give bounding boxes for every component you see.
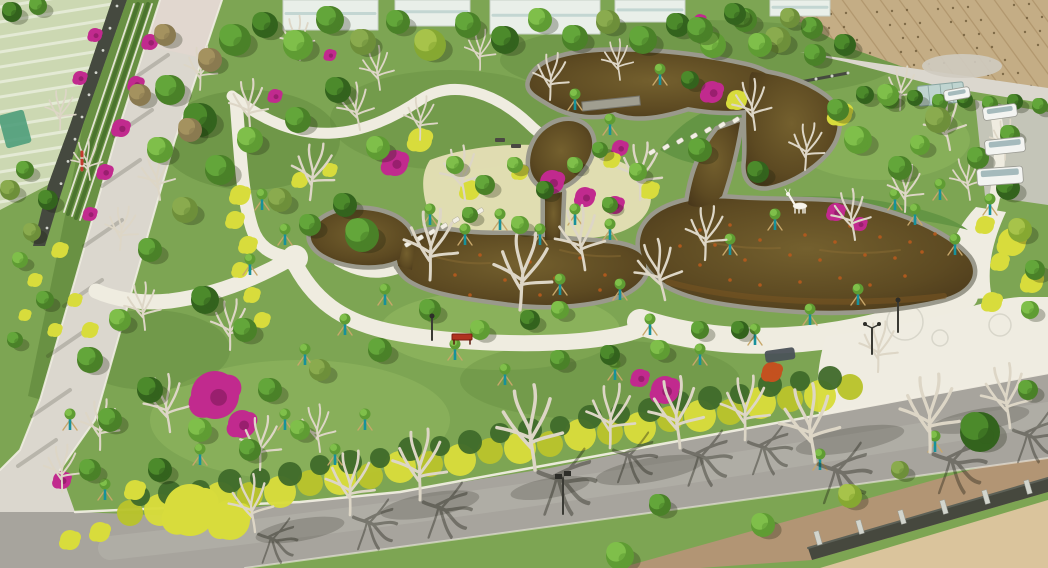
orange-flower-bush: [761, 370, 773, 382]
bougainvillea-magenta: [638, 376, 644, 382]
wall-post: [95, 71, 98, 74]
canopy-texture: [297, 117, 307, 127]
canopy-texture: [149, 248, 159, 258]
canopy-texture: [119, 318, 128, 327]
bare-orchard-tree: [1002, 73, 1004, 75]
canopy-texture: [189, 128, 199, 138]
koi-fish: [468, 293, 472, 297]
bare-orchard-tree: [937, 8, 939, 10]
bougainvillea-magenta: [210, 389, 227, 406]
canopy-texture: [249, 448, 258, 457]
canopy-texture: [699, 328, 706, 335]
bare-orchard-tree: [980, 19, 982, 21]
park-bench: [511, 144, 521, 148]
red-bench-seat: [452, 334, 472, 340]
canopy-texture: [919, 143, 927, 151]
canopy-texture: [469, 213, 475, 219]
koi-fish: [598, 288, 602, 292]
canopy-texture: [864, 93, 871, 100]
yellow-flower-bush: [47, 328, 55, 336]
koi-fish: [798, 280, 802, 284]
yellow-flower-bush: [135, 482, 146, 493]
canopy-texture: [24, 168, 31, 175]
canopy-texture: [219, 167, 231, 179]
canopy-texture: [978, 428, 994, 444]
wall-post: [116, 5, 119, 8]
bare-orchard-tree: [993, 32, 995, 34]
canopy-texture: [199, 428, 209, 438]
yellow-flower-bush: [67, 298, 75, 306]
canopy-texture: [544, 188, 551, 195]
bare-orchard-tree: [1017, 72, 1019, 74]
canopy-texture: [659, 348, 667, 356]
koi-fish: [833, 240, 837, 244]
canopy-texture: [899, 468, 906, 475]
koi-fish: [878, 235, 882, 239]
koi-fish: [503, 278, 507, 282]
park-bench: [495, 138, 505, 142]
canopy-texture: [574, 35, 584, 45]
bare-orchard-tree: [876, 11, 878, 13]
canopy-texture: [264, 22, 274, 32]
canopy-texture: [849, 494, 859, 504]
solar-panel: [564, 471, 571, 476]
koi-fish: [698, 263, 702, 267]
bare-orchard-tree: [1004, 59, 1006, 61]
koi-fish: [758, 238, 762, 242]
canopy-texture: [109, 418, 119, 428]
canopy-texture: [377, 146, 387, 156]
bare-orchard-tree: [856, 39, 858, 41]
koi-fish: [743, 258, 747, 262]
canopy-texture: [777, 37, 787, 47]
yellow-flower-bush: [650, 182, 660, 192]
dark-bush: [398, 437, 422, 461]
canopy-texture: [504, 37, 515, 48]
canopy-texture: [362, 39, 372, 49]
dark-bush: [310, 455, 330, 475]
bougainvillea-magenta: [79, 76, 84, 81]
canopy-texture: [637, 170, 644, 177]
bougainvillea-magenta: [94, 33, 99, 38]
bare-orchard-tree: [902, 37, 904, 39]
koi-fish: [678, 244, 682, 248]
canopy-texture: [379, 348, 389, 358]
canopy-texture: [269, 388, 279, 398]
yellow-flower-bush: [1000, 254, 1010, 264]
yellow-flower-bush: [235, 212, 245, 222]
bare-orchard-tree: [915, 50, 917, 52]
dark-bush: [458, 430, 482, 454]
yellow-flower-bush: [208, 515, 232, 539]
yellow-flower-bush: [75, 294, 83, 302]
yellow-flower-bush: [640, 188, 651, 199]
yellow-flower-bush: [89, 530, 101, 542]
canopy-texture: [479, 328, 487, 336]
canopy-texture: [139, 93, 148, 102]
bare-orchard-tree: [950, 21, 952, 23]
koi-fish: [893, 256, 897, 260]
bare-orchard-tree: [930, 49, 932, 51]
canopy-texture: [937, 117, 947, 127]
bare-orchard-tree: [978, 33, 980, 35]
canopy-texture: [757, 170, 766, 179]
bare-orchard-tree: [906, 9, 908, 11]
canopy-texture: [762, 523, 772, 533]
canopy-texture: [609, 353, 617, 361]
canopy-texture: [309, 223, 318, 232]
canopy-texture: [837, 108, 846, 117]
yellow-flower-bush: [997, 239, 1014, 256]
yellow-flower-bush: [60, 243, 69, 252]
dark-bush: [218, 469, 242, 493]
dark-bush: [278, 462, 302, 486]
canopy-texture: [619, 553, 630, 564]
yellow-flower-bush: [262, 313, 271, 322]
canopy-texture: [712, 42, 722, 52]
canopy-texture: [159, 468, 169, 478]
yellow-flower-bush: [55, 324, 63, 332]
dark-bush: [818, 366, 842, 390]
bougainvillea-magenta: [392, 160, 401, 169]
yellow-flower-bush: [407, 137, 421, 151]
bare-orchard-tree: [1026, 17, 1028, 19]
koi-fish: [728, 223, 732, 227]
koi-fish: [803, 233, 807, 237]
parked-car: [976, 166, 1023, 186]
yellow-flower-bush: [992, 294, 1003, 305]
canopy-texture: [559, 308, 566, 315]
canopy-texture: [19, 258, 25, 264]
bare-orchard-tree: [1041, 16, 1043, 18]
bougainvillea-magenta: [329, 54, 333, 58]
yellow-flower-bush: [70, 532, 81, 543]
yellow-flower-bush: [231, 268, 241, 278]
canopy-texture: [609, 203, 615, 209]
koi-fish: [908, 240, 912, 244]
yellow-flower-bush: [27, 278, 35, 286]
canopy-texture: [184, 207, 194, 217]
yellow-flower-bush: [225, 218, 236, 229]
koi-fish: [838, 276, 842, 280]
canopy-texture: [739, 328, 746, 335]
bare-orchard-tree: [889, 24, 891, 26]
yellow-flower-bush: [90, 323, 99, 332]
canopy-texture: [514, 163, 520, 169]
yellow-flower-bush: [25, 310, 32, 317]
koi-fish: [453, 273, 457, 277]
yellow-flower-bush: [161, 503, 192, 534]
canopy-texture: [31, 230, 38, 237]
koi-fish: [578, 256, 582, 260]
canopy-texture: [344, 203, 354, 213]
canopy-texture: [689, 78, 696, 85]
canopy-texture: [964, 98, 970, 104]
canopy-texture: [539, 18, 549, 28]
koi-fish: [818, 258, 822, 262]
yellow-flower-bush: [18, 314, 25, 321]
canopy-texture: [574, 163, 580, 169]
wall-post: [60, 182, 63, 185]
canopy-texture: [1039, 104, 1045, 110]
orange-flower-bush: [772, 364, 783, 375]
bare-orchard-tree: [1037, 44, 1039, 46]
canopy-texture: [887, 93, 896, 102]
boulder-rock: [922, 54, 1002, 78]
canopy-texture: [337, 87, 347, 97]
bare-orchard-tree: [843, 26, 845, 28]
yellow-flower-bush: [420, 130, 433, 143]
wall-post: [81, 116, 84, 119]
canopy-texture: [977, 156, 986, 165]
canopy-texture: [44, 298, 51, 305]
wall-post: [67, 160, 70, 163]
canopy-texture: [559, 358, 567, 366]
canopy-texture: [659, 503, 668, 512]
canopy-texture: [734, 12, 743, 21]
bougainvillea-magenta: [618, 146, 624, 152]
canopy-texture: [1007, 186, 1017, 196]
bare-orchard-tree: [952, 7, 954, 9]
solar-panel: [555, 474, 562, 479]
yellow-flower-bush: [252, 288, 261, 297]
wall-post: [831, 75, 834, 78]
canopy-texture: [397, 20, 407, 30]
canopy-texture: [699, 148, 709, 158]
bougainvillea-magenta: [239, 421, 249, 431]
canopy-texture: [677, 23, 687, 33]
koi-fish: [788, 253, 792, 257]
bare-orchard-tree: [1024, 31, 1026, 33]
canopy-texture: [467, 22, 477, 32]
lamp-head: [877, 322, 881, 326]
bare-orchard-tree: [1039, 30, 1041, 32]
canopy-texture: [1027, 388, 1035, 396]
canopy-texture: [699, 27, 709, 37]
canopy-texture: [204, 297, 215, 308]
bougainvillea-magenta: [89, 212, 94, 217]
lamp-head: [863, 322, 867, 326]
wall-post: [815, 78, 818, 81]
canopy-texture: [529, 318, 537, 326]
canopy-texture: [914, 96, 920, 102]
lamp-head: [430, 314, 435, 319]
bare-orchard-tree: [891, 10, 893, 12]
yellow-flower-bush: [985, 217, 995, 227]
yellow-flower-bush: [975, 223, 986, 234]
canopy-texture: [599, 148, 605, 154]
bougainvillea-magenta: [148, 40, 154, 46]
dark-bush: [490, 423, 510, 443]
canopy-texture: [233, 37, 246, 50]
canopy-texture: [11, 10, 19, 18]
wall-post: [847, 72, 850, 75]
yellow-flower-bush: [322, 168, 330, 176]
bare-orchard-tree: [900, 51, 902, 53]
yellow-flower-bush: [124, 488, 136, 500]
yellow-flower-bush: [35, 274, 43, 282]
bare-orchard-tree: [913, 64, 915, 66]
bare-orchard-tree: [965, 20, 967, 22]
aerial-park-photo: [0, 0, 1048, 568]
wall-post: [109, 27, 112, 30]
bare-orchard-tree: [919, 22, 921, 24]
canopy-texture: [164, 33, 173, 42]
bougainvillea-magenta: [583, 195, 590, 202]
canopy-texture: [244, 328, 254, 338]
dark-bush: [790, 371, 810, 391]
canopy-texture: [299, 428, 307, 436]
bare-orchard-tree: [828, 27, 830, 29]
canopy-texture: [899, 166, 909, 176]
bare-orchard-tree: [845, 12, 847, 14]
yellow-flower-bush: [248, 237, 258, 247]
canopy-texture: [519, 223, 526, 230]
bare-orchard-tree: [1028, 3, 1030, 5]
koi-fish: [713, 243, 717, 247]
canopy-texture: [428, 42, 441, 55]
koi-fish: [903, 274, 907, 278]
yellow-flower-bush: [291, 178, 301, 188]
canopy-texture: [89, 357, 99, 367]
canopy-texture: [607, 20, 617, 30]
yellow-flower-bush: [990, 260, 1001, 271]
canopy-texture: [789, 16, 797, 24]
bougainvillea-magenta: [119, 126, 125, 132]
yellow-flower-bush: [240, 187, 251, 198]
yellow-flower-bush: [238, 243, 249, 254]
canopy-texture: [811, 26, 820, 35]
koi-fish: [933, 232, 937, 236]
canopy-texture: [37, 4, 44, 11]
koi-fish: [758, 283, 762, 287]
koi-fish: [603, 273, 607, 277]
building: [770, 0, 830, 16]
dark-bush: [698, 386, 722, 410]
canopy-texture: [249, 137, 259, 147]
yellow-flower-bush: [59, 538, 71, 550]
canopy-texture: [159, 147, 169, 157]
canopy-texture: [9, 188, 17, 196]
bougainvillea-magenta: [274, 94, 279, 99]
yellow-flower-bush: [1020, 279, 1033, 292]
canopy-texture: [319, 368, 328, 377]
canopy-texture: [484, 183, 492, 191]
koi-fish: [920, 250, 924, 254]
canopy-texture: [47, 198, 55, 206]
canopy-texture: [329, 17, 340, 28]
canopy-texture: [1019, 228, 1029, 238]
canopy-texture: [360, 232, 374, 246]
koi-fish: [538, 293, 542, 297]
canopy-texture: [814, 53, 823, 62]
wall-post: [74, 138, 77, 141]
wall-post: [102, 49, 105, 52]
lamp-head: [896, 298, 901, 303]
canopy-texture: [642, 37, 653, 48]
canopy-texture: [209, 58, 219, 68]
wall-post: [88, 93, 91, 96]
bare-orchard-tree: [869, 52, 871, 54]
bare-orchard-tree: [967, 6, 969, 8]
koi-fish: [863, 253, 867, 257]
canopy-texture: [844, 43, 853, 52]
bare-orchard-tree: [917, 36, 919, 38]
yellow-flower-bush: [229, 193, 241, 205]
yellow-flower-bush: [243, 293, 253, 303]
yellow-flower-bush: [100, 524, 111, 535]
yellow-flower-bush: [330, 164, 338, 172]
canopy-texture: [297, 42, 309, 54]
bare-orchard-tree: [1013, 4, 1015, 6]
yellow-flower-bush: [981, 300, 993, 312]
dark-bush: [370, 448, 390, 468]
yellow-flower-bush: [51, 248, 61, 258]
canopy-texture: [89, 468, 98, 477]
canopy-texture: [149, 387, 159, 397]
bare-orchard-tree: [904, 23, 906, 25]
yellow-flower-bush: [81, 328, 91, 338]
bare-orchard-tree: [976, 47, 978, 49]
canopy-texture: [857, 137, 868, 148]
canopy-texture: [169, 87, 181, 99]
bougainvillea-magenta: [859, 222, 864, 227]
bare-orchard-tree: [991, 46, 993, 48]
park-scene-svg: [0, 0, 1048, 568]
canopy-texture: [1029, 308, 1036, 315]
koi-fish: [868, 283, 872, 287]
canopy-texture: [454, 163, 461, 170]
canopy-texture: [14, 338, 20, 344]
bare-orchard-tree: [963, 34, 965, 36]
wall-post: [46, 227, 49, 230]
bougainvillea-magenta: [103, 170, 109, 176]
canopy-texture: [939, 100, 945, 106]
canopy-texture: [759, 43, 769, 53]
koi-fish: [728, 278, 732, 282]
canopy-texture: [279, 198, 289, 208]
canopy-texture: [1034, 268, 1042, 276]
koi-fish: [478, 253, 482, 257]
bougainvillea-magenta: [710, 89, 718, 97]
koi-fish: [698, 228, 702, 232]
